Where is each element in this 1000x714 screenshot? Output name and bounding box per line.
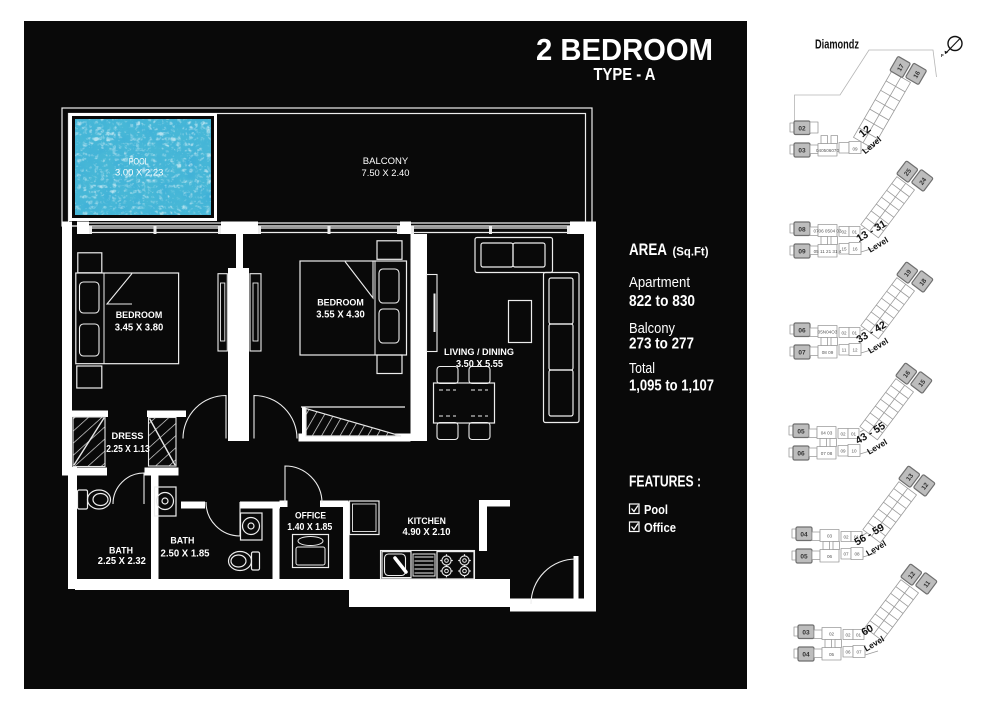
svg-text:05: 05: [797, 429, 805, 436]
svg-text:POOL: POOL: [129, 157, 149, 167]
svg-text:BEDROOM: BEDROOM: [116, 310, 163, 321]
svg-text:1.40 X 1.85: 1.40 X 1.85: [287, 522, 332, 533]
svg-text:07: 07: [798, 350, 806, 357]
svg-text:2.50 X 1.85: 2.50 X 1.85: [161, 549, 210, 560]
svg-text:03: 03: [798, 148, 806, 155]
svg-text:Office: Office: [644, 520, 676, 535]
svg-text:09: 09: [798, 249, 806, 256]
svg-text:01: 01: [856, 633, 862, 638]
svg-text:02: 02: [829, 632, 835, 637]
svg-text:16: 16: [852, 247, 858, 252]
svg-text:09: 09: [840, 449, 846, 454]
svg-text:02: 02: [845, 633, 851, 638]
svg-text:06: 06: [798, 328, 806, 335]
svg-text:06: 06: [827, 554, 833, 559]
svg-text:12: 12: [852, 348, 858, 353]
svg-text:08: 08: [854, 552, 860, 557]
svg-text:06: 06: [845, 650, 851, 655]
svg-text:02: 02: [843, 535, 849, 540]
svg-text:05 11 21 31 4: 05 11 21 31 4: [814, 249, 842, 254]
svg-text:2.25 X 2.32: 2.25 X 2.32: [98, 556, 146, 567]
svg-text:Diamondz: Diamondz: [815, 37, 859, 52]
svg-text:BATH: BATH: [109, 546, 133, 557]
svg-text:09: 09: [852, 147, 858, 152]
svg-text:06: 06: [797, 451, 805, 458]
svg-text:LIVING / DINING: LIVING / DINING: [444, 347, 514, 358]
svg-text:07: 07: [843, 552, 849, 557]
svg-text:BEDROOM: BEDROOM: [317, 298, 364, 309]
svg-text:2.25 X 1.13: 2.25 X 1.13: [106, 444, 150, 455]
svg-text:02: 02: [840, 432, 846, 437]
svg-text:7.50 X 2.40: 7.50 X 2.40: [362, 168, 410, 179]
svg-text:BATH: BATH: [170, 536, 194, 547]
svg-text:07: 07: [856, 650, 862, 655]
svg-text:02: 02: [841, 230, 847, 235]
svg-text:05N04O3: 05N04O3: [818, 330, 838, 335]
svg-text:0706 0504 03: 0706 0504 03: [813, 229, 842, 234]
svg-text:04 03: 04 03: [821, 431, 833, 436]
svg-text:FEATURES :: FEATURES :: [629, 474, 701, 491]
svg-text:08 09: 08 09: [822, 350, 834, 355]
svg-text:OFFICE: OFFICE: [295, 511, 326, 522]
svg-text:4.90 X 2.10: 4.90 X 2.10: [403, 527, 451, 538]
svg-text:05: 05: [829, 652, 835, 657]
svg-text:(Sq.Ft): (Sq.Ft): [673, 245, 709, 259]
svg-text:03: 03: [827, 534, 833, 539]
svg-text:3.50 X 5.55: 3.50 X 5.55: [456, 359, 503, 370]
svg-text:3.55 X 4.30: 3.55 X 4.30: [316, 310, 365, 321]
svg-text:10: 10: [851, 449, 857, 454]
svg-text:02: 02: [841, 331, 847, 336]
svg-text:DRESS: DRESS: [112, 431, 144, 442]
svg-text:2 BEDROOM: 2 BEDROOM: [536, 32, 713, 67]
svg-text:Total: Total: [629, 360, 655, 377]
svg-text:04: 04: [800, 532, 808, 539]
svg-text:Balcony: Balcony: [629, 320, 675, 337]
svg-text:3.00 X 2.23: 3.00 X 2.23: [115, 168, 163, 179]
svg-text:BALCONY: BALCONY: [363, 156, 409, 166]
svg-text:05: 05: [800, 554, 808, 561]
svg-text:03: 03: [802, 630, 810, 637]
svg-text:822 to 830: 822 to 830: [629, 293, 695, 310]
svg-text:11: 11: [842, 348, 847, 353]
svg-text:04: 04: [802, 652, 810, 659]
svg-text:02: 02: [798, 126, 806, 133]
svg-text:07 08: 07 08: [821, 451, 833, 456]
svg-text:Apartment: Apartment: [629, 274, 691, 291]
svg-text:KITCHEN: KITCHEN: [407, 516, 446, 527]
svg-text:15: 15: [841, 247, 847, 252]
svg-text:F: F: [941, 53, 944, 58]
svg-text:TYPE - A: TYPE - A: [594, 64, 656, 84]
svg-text:08: 08: [798, 227, 806, 234]
svg-text:1,095 to 1,107: 1,095 to 1,107: [629, 378, 714, 395]
svg-text:273 to 277: 273 to 277: [629, 336, 694, 353]
svg-text:Pool: Pool: [644, 502, 668, 517]
svg-text:AREA: AREA: [629, 241, 667, 259]
svg-text:040506070: 040506070: [816, 148, 839, 153]
svg-text:3.45 X 3.80: 3.45 X 3.80: [115, 323, 164, 334]
